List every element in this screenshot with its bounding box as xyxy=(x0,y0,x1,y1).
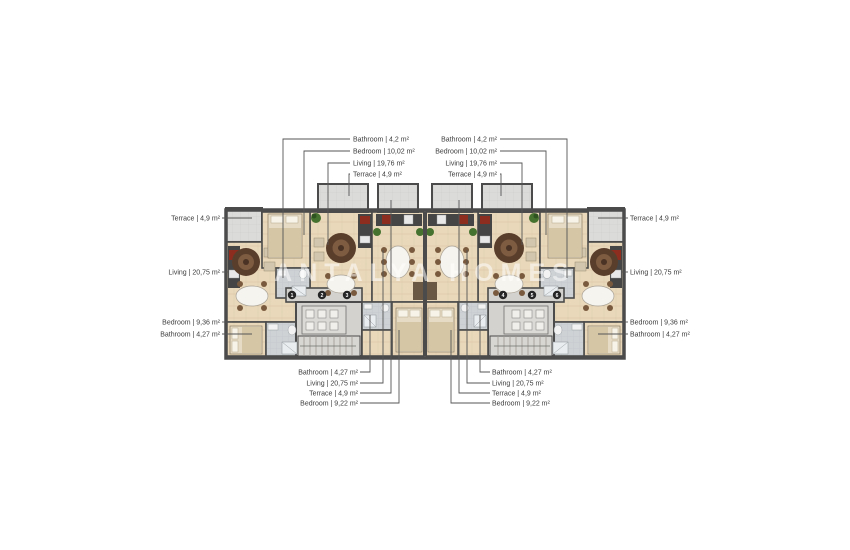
door-number-4: 4 xyxy=(502,293,505,299)
door-number-5: 5 xyxy=(531,293,534,299)
watermark-text: ANTALYA HOMES xyxy=(274,259,576,287)
label-bathroom-top-right: Bathroom | 4,2 m² xyxy=(441,137,498,144)
label-bathroom-bottom-right: Bathroom | 4,27 m² xyxy=(492,370,552,377)
door-number-1: 1 xyxy=(291,293,294,299)
label-living-right: Living | 20,75 m² xyxy=(630,270,682,277)
label-bathroom-left: Bathroom | 4,27 m² xyxy=(160,332,220,339)
door-number-2: 2 xyxy=(321,293,324,299)
label-terrace-top-left: Terrace | 4,9 m² xyxy=(353,172,403,179)
label-bedroom-bottom-right: Bedroom | 9,22 m² xyxy=(492,401,551,408)
label-terrace-top-right: Terrace | 4,9 m² xyxy=(448,172,498,179)
label-living-bottom-left: Living | 20,75 m² xyxy=(306,381,358,388)
label-terrace-left: Terrace | 4,9 m² xyxy=(171,216,221,223)
door-number-3: 3 xyxy=(346,293,349,299)
floor-plan-svg: ANTALYA HOMES 1 2 3 4 5 6 xyxy=(0,0,850,550)
label-bathroom-bottom-left: Bathroom | 4,27 m² xyxy=(298,370,358,377)
label-bedroom-bottom-left: Bedroom | 9,22 m² xyxy=(300,401,359,408)
label-living-top-left: Living | 19,76 m² xyxy=(353,161,405,168)
label-bedroom-left: Bedroom | 9,36 m² xyxy=(162,320,221,327)
label-living-bottom-right: Living | 20,75 m² xyxy=(492,381,544,388)
label-bathroom-right: Bathroom | 4,27 m² xyxy=(630,332,690,339)
label-living-left: Living | 20,75 m² xyxy=(168,270,220,277)
floor-plan-page: ANTALYA HOMES 1 2 3 4 5 6 xyxy=(0,0,850,550)
label-terrace-bottom-left: Terrace | 4,9 m² xyxy=(309,391,359,398)
door-number-6: 6 xyxy=(556,293,559,299)
label-bedroom-top-left: Bedroom | 10,02 m² xyxy=(353,149,415,156)
label-terrace-bottom-right: Terrace | 4,9 m² xyxy=(492,391,542,398)
label-bedroom-right: Bedroom | 9,36 m² xyxy=(630,320,689,327)
label-terrace-right: Terrace | 4,9 m² xyxy=(630,216,680,223)
label-bathroom-top-left: Bathroom | 4,2 m² xyxy=(353,137,410,144)
label-bedroom-top-right: Bedroom | 10,02 m² xyxy=(435,149,497,156)
label-living-top-right: Living | 19,76 m² xyxy=(445,161,497,168)
